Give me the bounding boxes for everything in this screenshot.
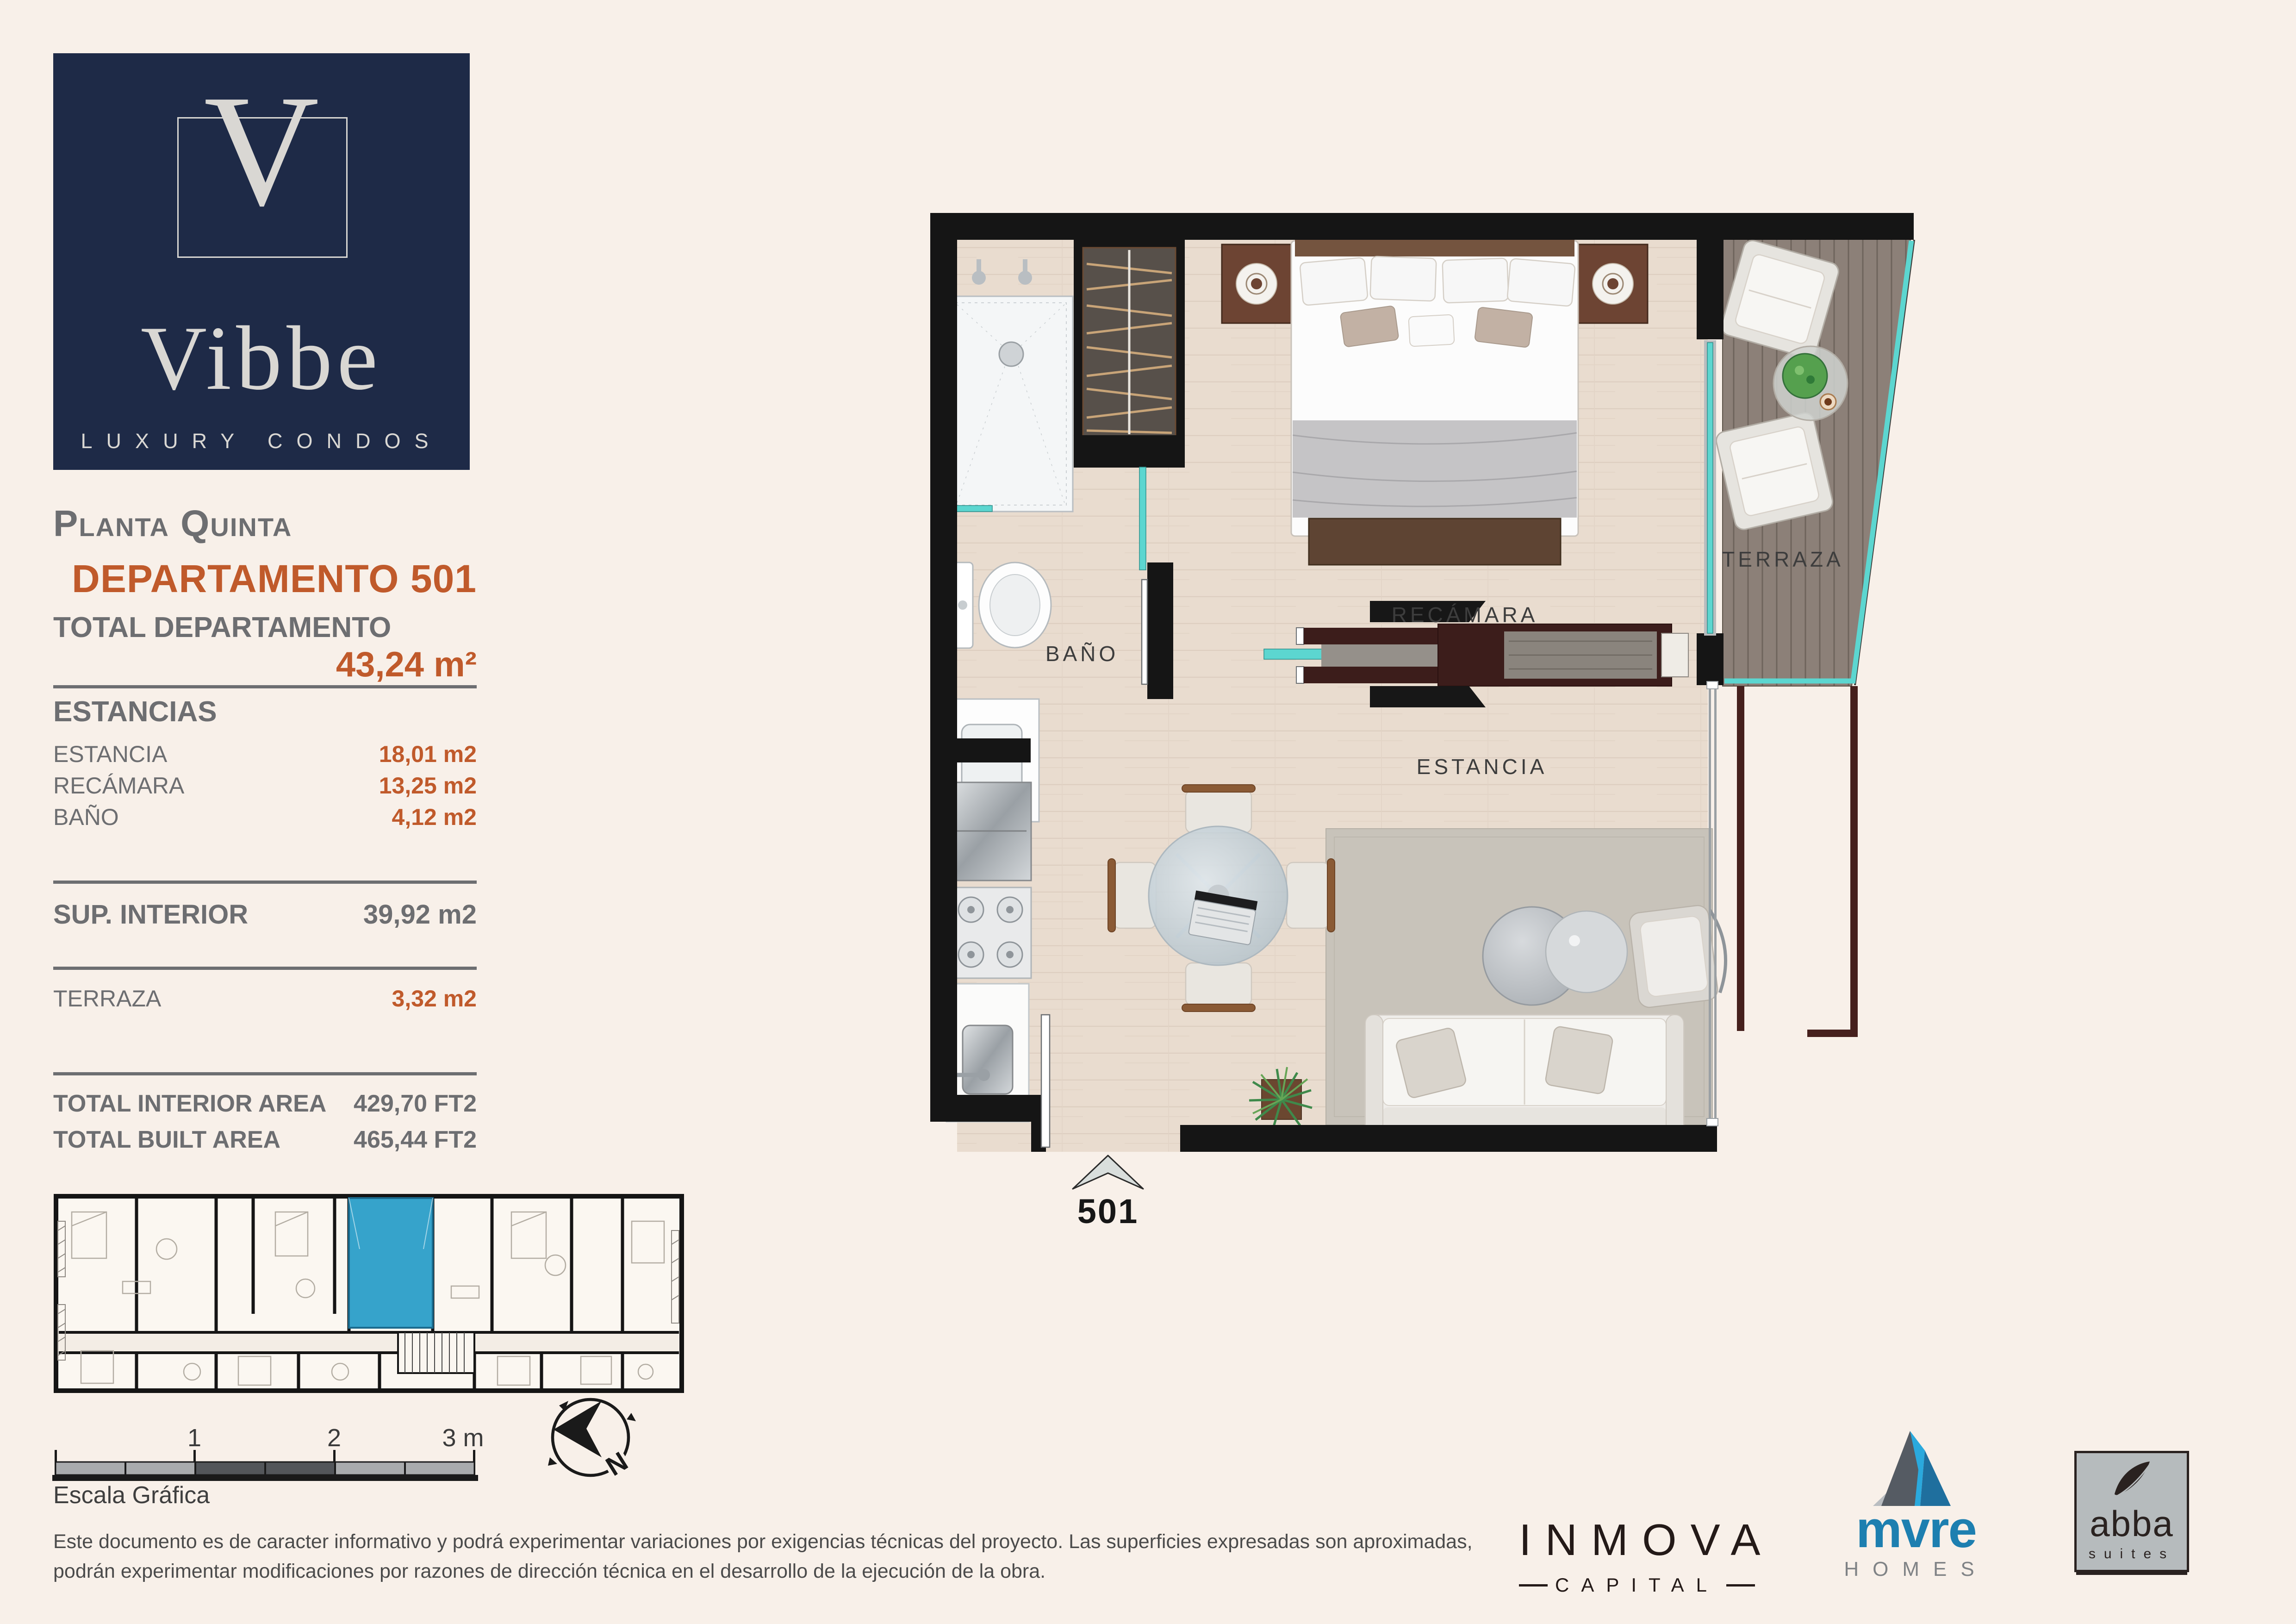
unit-number: 501 [1077,1192,1139,1230]
balcony-edge [1737,686,1858,1037]
mvre-logo: mvre HOMES [1840,1428,1992,1581]
mvre-name: mvre [1840,1506,1992,1553]
scale-tick-label: 1 [187,1425,201,1452]
abba-logo: abba suites [2074,1451,2189,1572]
terrace-value: 3,32 m2 [392,985,477,1012]
bedroom-window [1704,340,1716,636]
north-arrow-icon [554,1401,602,1457]
scale-segments [56,1462,474,1475]
floorplan-sheet: V Vibbe LUXURY CONDOS Planta Quinta DEPA… [0,0,2296,1624]
divider [53,1072,477,1075]
dash-left [1519,1584,1548,1587]
divider [53,685,477,688]
nightstand-left [1222,244,1291,323]
key-plan-unit-501 [349,1198,433,1328]
entry-door-leaf [1041,1015,1050,1147]
table-row: ESTANCIA 18,01 m2 [53,741,477,768]
room-label: BAÑO [53,804,119,831]
stove [949,887,1031,978]
disclaimer-line-2: podrán experimentar modificaciones por r… [53,1556,1493,1586]
logo-v-icon: V [53,71,470,231]
terrace-lounge-chair-2 [1714,411,1834,531]
table-row: RECÁMARA 13,25 m2 [53,772,477,799]
floor-title: Planta Quinta [53,502,292,545]
divider [53,881,477,884]
terrace-label: TERRAZA [53,985,161,1012]
toilet [949,562,1051,648]
unit-title: DEPARTAMENTO 501 [53,556,477,601]
scale-baseline [52,1475,478,1481]
hall-door-leaf [1142,580,1147,684]
room-label: ESTANCIA [53,741,167,768]
scale-tick-label: 2 [327,1425,341,1452]
room-value: 18,01 m2 [379,741,477,768]
inmova-sub: CAPITAL [1555,1574,1719,1596]
scale-tick-label: 3 m. [442,1425,485,1452]
key-plan [53,1193,690,1393]
interior-value: 39,92 m2 [363,899,477,930]
table-row: BAÑO 4,12 m2 [53,804,477,831]
scale-bar: 1 2 3 m. [52,1425,485,1487]
room-label-recamara: RECÁMARA [1392,603,1538,627]
total-interior-value: 429,70 FT2 [354,1090,477,1118]
nightstand-right [1578,244,1648,323]
abba-name: abba [2077,1505,2187,1542]
scale-caption: Escala Gráfica [53,1481,210,1509]
total-value: 43,24 m² [53,644,477,685]
room-label-bano: BAÑO [1045,642,1119,666]
compass: N [541,1389,642,1491]
wardrobe-closet [1074,238,1185,456]
abba-sub: suites [2077,1546,2187,1562]
total-label: TOTAL DEPARTAMENTO [53,611,391,644]
compass-north-label: N [601,1446,633,1482]
key-plan-corridor [59,1332,679,1353]
table-row: TERRAZA 3,32 m2 [53,985,477,1012]
fridge [949,782,1031,881]
room-label-estancia: ESTANCIA [1417,755,1548,779]
bed [1291,240,1578,565]
table-row: SUP. INTERIOR 39,92 m2 [53,899,477,930]
estancias-heading: ESTANCIAS [53,695,217,728]
total-interior-label: TOTAL INTERIOR AREA [53,1090,326,1118]
brand-logo-card: V Vibbe LUXURY CONDOS [53,53,470,470]
total-built-value: 465,44 FT2 [354,1126,477,1154]
table-row: TOTAL INTERIOR AREA 429,70 FT2 [53,1090,477,1118]
room-label-terraza: TERRAZA [1722,547,1844,571]
room-value: 4,12 m2 [392,804,477,831]
total-built-label: TOTAL BUILT AREA [53,1126,280,1154]
entry-arrow-icon [1073,1156,1143,1189]
mvre-sub: HOMES [1840,1558,1992,1581]
terrace-table [1773,346,1848,420]
interior-label: SUP. INTERIOR [53,899,248,930]
key-plan-stairs [398,1332,474,1373]
bath-sliding-door [1139,467,1146,570]
table-row: TOTAL BUILT AREA 465,44 FT2 [53,1126,477,1154]
dash-right [1726,1584,1755,1587]
brand-tagline: LUXURY CONDOS [53,429,470,453]
shower [949,259,1073,512]
disclaimer-line-1: Este documento es de caracter informativ… [53,1527,1493,1556]
disclaimer: Este documento es de caracter informativ… [53,1527,1493,1586]
divider [53,967,477,970]
unit-floor-plan: BAÑO RECÁMARA ESTANCIA TERRAZA 501 [902,194,1990,1259]
mvre-mountain-icon [1867,1428,1965,1507]
inmova-logo: INMOVA CAPITAL [1519,1515,1764,1596]
inmova-name: INMOVA [1519,1515,1764,1566]
brand-name: Vibbe [53,306,470,411]
room-value: 13,25 m2 [379,772,477,799]
room-label: RECÁMARA [53,772,184,799]
abba-leaf-icon [2111,1460,2153,1500]
